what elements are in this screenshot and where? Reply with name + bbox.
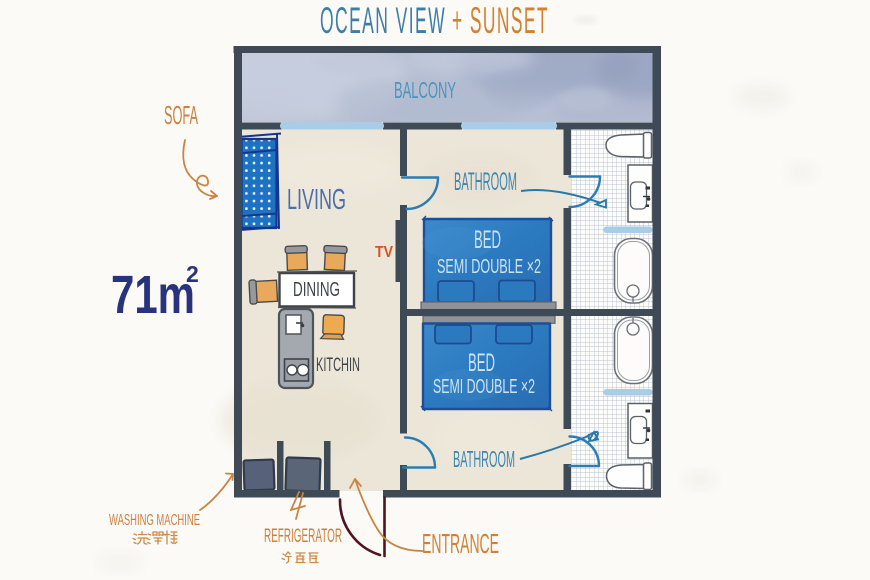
svg-text:LIVING: LIVING bbox=[287, 184, 346, 216]
svg-text:TV: TV bbox=[375, 244, 393, 261]
svg-text:BED: BED bbox=[474, 226, 501, 254]
svg-text:BED: BED bbox=[468, 349, 495, 377]
svg-text:REFRIGERATOR: REFRIGERATOR bbox=[264, 526, 342, 547]
svg-text:BATHROOM: BATHROOM bbox=[453, 446, 515, 472]
svg-text:+ SUNSET: + SUNSET bbox=[452, 0, 549, 41]
svg-text:WASHING MACHINE: WASHING MACHINE bbox=[109, 512, 200, 529]
svg-text:ENTRANCE: ENTRANCE bbox=[422, 528, 499, 559]
svg-text:2: 2 bbox=[186, 261, 199, 287]
svg-text:SEMI DOUBLE ×2: SEMI DOUBLE ×2 bbox=[437, 256, 541, 278]
svg-text:71m: 71m bbox=[111, 265, 195, 325]
svg-text:SOFA: SOFA bbox=[164, 100, 198, 130]
svg-text:OCEAN VIEW: OCEAN VIEW bbox=[320, 0, 446, 41]
svg-text:BATHROOM: BATHROOM bbox=[454, 168, 517, 196]
svg-text:BALCONY: BALCONY bbox=[394, 77, 456, 103]
svg-text:SEMI DOUBLE ×2: SEMI DOUBLE ×2 bbox=[433, 376, 535, 398]
svg-text:KITCHIN: KITCHIN bbox=[316, 355, 360, 376]
svg-text:DINING: DINING bbox=[293, 279, 340, 301]
